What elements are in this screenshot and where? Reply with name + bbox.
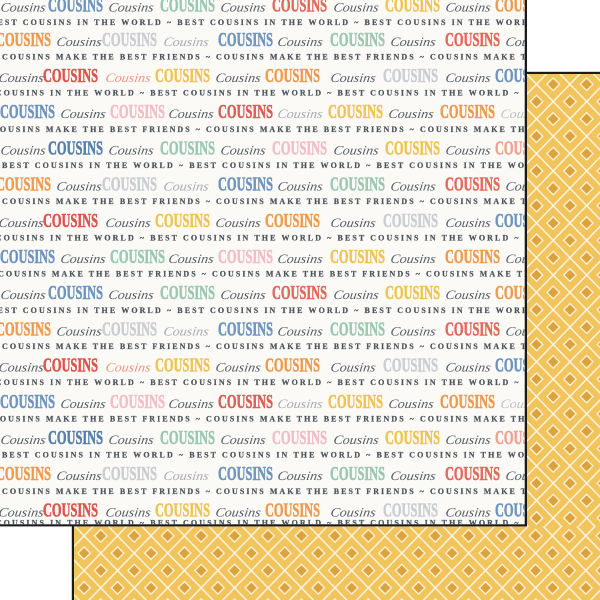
- svg-text:COUSINS: COUSINS: [385, 0, 440, 17]
- svg-text:Cousins: Cousins: [0, 505, 45, 519]
- svg-text:Cousins: Cousins: [60, 252, 107, 266]
- svg-text:COUSINS: COUSINS: [102, 464, 157, 485]
- svg-text:COUSINS: COUSINS: [445, 175, 500, 196]
- svg-text:COUSINS MAKE THE BEST FRIENDS: COUSINS MAKE THE BEST FRIENDS ~ COUSINS …: [2, 342, 600, 351]
- svg-text:Cousins: Cousins: [445, 143, 492, 157]
- svg-text:Cousins: Cousins: [105, 505, 152, 519]
- svg-text:COUSINS: COUSINS: [330, 319, 385, 340]
- svg-text:COUSINS: COUSINS: [385, 428, 440, 449]
- svg-text:Cousins: Cousins: [445, 1, 492, 15]
- svg-text:COUSINS: COUSINS: [218, 392, 273, 413]
- svg-text:COUSINS: COUSINS: [218, 319, 273, 340]
- svg-text:COUSINS: COUSINS: [272, 428, 327, 449]
- svg-text:COUSINS: COUSINS: [383, 356, 438, 377]
- svg-text:COUSINS: COUSINS: [110, 392, 165, 413]
- svg-text:COUSINS: COUSINS: [0, 247, 55, 268]
- svg-text:Cousins: Cousins: [163, 35, 210, 49]
- svg-text:COUSINS: COUSINS: [43, 356, 98, 377]
- svg-text:COUSINS: COUSINS: [495, 0, 550, 17]
- svg-text:BEST COUSINS IN THE WORLD ~ BE: BEST COUSINS IN THE WORLD ~ BEST COUSINS…: [0, 89, 600, 98]
- svg-text:COUSINS MAKE THE BEST FRIENDS: COUSINS MAKE THE BEST FRIENDS ~ COUSINS …: [2, 487, 600, 496]
- svg-text:BEST COUSINS IN THE WORLD ~ BE: BEST COUSINS IN THE WORLD ~ BEST COUSINS…: [0, 378, 600, 387]
- svg-text:COUSINS MAKE THE BEST FRIENDS: COUSINS MAKE THE BEST FRIENDS ~ COUSINS …: [0, 270, 600, 279]
- svg-text:Cousins: Cousins: [0, 1, 47, 15]
- svg-text:Cousins: Cousins: [56, 180, 103, 194]
- svg-text:COUSINS MAKE THE BEST FRIENDS: COUSINS MAKE THE BEST FRIENDS ~ COUSINS …: [0, 414, 600, 423]
- svg-text:COUSINS: COUSINS: [48, 0, 103, 17]
- svg-text:COUSINS: COUSINS: [330, 30, 385, 51]
- svg-text:Cousins: Cousins: [168, 252, 215, 266]
- svg-text:COUSINS: COUSINS: [110, 247, 165, 268]
- svg-text:COUSINS: COUSINS: [383, 211, 438, 232]
- svg-text:COUSINS: COUSINS: [160, 428, 215, 449]
- svg-text:COUSINS: COUSINS: [102, 319, 157, 340]
- svg-text:Cousins: Cousins: [445, 505, 492, 519]
- svg-text:COUSINS: COUSINS: [43, 211, 98, 232]
- svg-text:Cousins: Cousins: [277, 107, 324, 121]
- svg-text:Cousins: Cousins: [390, 35, 437, 49]
- svg-text:Cousins: Cousins: [105, 361, 152, 375]
- svg-text:COUSINS: COUSINS: [102, 30, 157, 51]
- svg-text:COUSINS: COUSINS: [272, 138, 327, 159]
- svg-text:Cousins: Cousins: [330, 216, 377, 230]
- svg-text:Cousins: Cousins: [445, 288, 492, 302]
- svg-text:COUSINS: COUSINS: [383, 66, 438, 87]
- svg-text:Cousins: Cousins: [277, 324, 324, 338]
- svg-text:COUSINS: COUSINS: [265, 66, 320, 87]
- svg-text:COUSINS: COUSINS: [155, 66, 210, 87]
- svg-text:COUSINS: COUSINS: [440, 102, 495, 123]
- svg-text:Cousins: Cousins: [277, 469, 324, 483]
- svg-text:Cousins: Cousins: [105, 71, 152, 85]
- svg-text:Cousins: Cousins: [0, 361, 45, 375]
- svg-text:COUSINS: COUSINS: [328, 102, 383, 123]
- svg-text:BEST COUSINS IN THE WORLD ~ BE: BEST COUSINS IN THE WORLD ~ BEST COUSINS…: [2, 161, 600, 170]
- svg-text:Cousins: Cousins: [333, 143, 380, 157]
- svg-text:Cousins: Cousins: [445, 433, 492, 447]
- svg-text:COUSINS: COUSINS: [0, 392, 55, 413]
- svg-text:Cousins: Cousins: [56, 324, 103, 338]
- svg-text:Cousins: Cousins: [390, 180, 437, 194]
- svg-text:COUSINS: COUSINS: [445, 30, 500, 51]
- svg-text:Cousins: Cousins: [333, 433, 380, 447]
- svg-text:Cousins: Cousins: [56, 35, 103, 49]
- svg-text:Cousins: Cousins: [220, 143, 267, 157]
- svg-text:BEST COUSINS IN THE WORLD ~ BE: BEST COUSINS IN THE WORLD ~ BEST COUSINS…: [2, 451, 600, 460]
- svg-text:COUSINS: COUSINS: [48, 428, 103, 449]
- svg-text:Cousins: Cousins: [330, 361, 377, 375]
- svg-text:COUSINS: COUSINS: [0, 175, 51, 196]
- svg-text:COUSINS: COUSINS: [160, 0, 215, 17]
- svg-text:COUSINS: COUSINS: [385, 283, 440, 304]
- svg-text:COUSINS: COUSINS: [385, 138, 440, 159]
- svg-text:COUSINS: COUSINS: [445, 319, 500, 340]
- svg-text:COUSINS: COUSINS: [160, 138, 215, 159]
- svg-text:COUSINS MAKE THE BEST FRIENDS: COUSINS MAKE THE BEST FRIENDS ~ COUSINS …: [2, 52, 600, 61]
- svg-text:COUSINS: COUSINS: [272, 0, 327, 17]
- svg-text:BEST COUSINS IN THE WORLD ~ BE: BEST COUSINS IN THE WORLD ~ BEST COUSINS…: [0, 18, 600, 27]
- svg-text:Cousins: Cousins: [0, 71, 45, 85]
- svg-text:Cousins: Cousins: [277, 35, 324, 49]
- svg-text:Cousins: Cousins: [390, 252, 437, 266]
- svg-text:COUSINS: COUSINS: [218, 30, 273, 51]
- svg-text:COUSINS MAKE THE BEST FRIENDS: COUSINS MAKE THE BEST FRIENDS ~ COUSINS …: [0, 125, 600, 134]
- svg-text:Cousins: Cousins: [330, 505, 377, 519]
- svg-text:COUSINS: COUSINS: [440, 392, 495, 413]
- svg-text:COUSINS: COUSINS: [0, 464, 51, 485]
- svg-text:Cousins: Cousins: [215, 71, 262, 85]
- svg-text:Cousins: Cousins: [108, 288, 155, 302]
- svg-text:Cousins: Cousins: [163, 469, 210, 483]
- svg-text:Cousins: Cousins: [445, 361, 492, 375]
- svg-text:Cousins: Cousins: [168, 397, 215, 411]
- svg-text:COUSINS: COUSINS: [218, 247, 273, 268]
- svg-text:COUSINS: COUSINS: [272, 283, 327, 304]
- svg-text:Cousins: Cousins: [445, 71, 492, 85]
- svg-text:Cousins: Cousins: [277, 397, 324, 411]
- svg-text:Cousins: Cousins: [0, 433, 47, 447]
- svg-text:COUSINS: COUSINS: [330, 175, 385, 196]
- svg-text:Cousins: Cousins: [163, 324, 210, 338]
- svg-text:Cousins: Cousins: [105, 216, 152, 230]
- svg-text:Cousins: Cousins: [163, 180, 210, 194]
- svg-text:COUSINS: COUSINS: [265, 211, 320, 232]
- svg-text:Cousins: Cousins: [388, 397, 435, 411]
- svg-text:Cousins: Cousins: [390, 324, 437, 338]
- svg-text:Cousins: Cousins: [215, 216, 262, 230]
- svg-text:Cousins: Cousins: [388, 107, 435, 121]
- svg-text:Cousins: Cousins: [168, 107, 215, 121]
- svg-text:COUSINS: COUSINS: [48, 283, 103, 304]
- svg-text:Cousins: Cousins: [0, 143, 47, 157]
- svg-text:Cousins: Cousins: [277, 252, 324, 266]
- svg-text:COUSINS: COUSINS: [445, 464, 500, 485]
- svg-text:Cousins: Cousins: [60, 397, 107, 411]
- svg-text:COUSINS: COUSINS: [160, 283, 215, 304]
- svg-text:COUSINS: COUSINS: [0, 319, 51, 340]
- svg-text:COUSINS: COUSINS: [265, 356, 320, 377]
- svg-text:COUSINS: COUSINS: [218, 464, 273, 485]
- svg-text:COUSINS: COUSINS: [218, 175, 273, 196]
- svg-text:Cousins: Cousins: [220, 433, 267, 447]
- svg-text:Cousins: Cousins: [108, 433, 155, 447]
- svg-text:Cousins: Cousins: [505, 35, 552, 49]
- svg-text:COUSINS: COUSINS: [48, 138, 103, 159]
- svg-text:Cousins: Cousins: [330, 71, 377, 85]
- svg-text:Cousins: Cousins: [220, 1, 267, 15]
- svg-text:COUSINS: COUSINS: [43, 66, 98, 87]
- svg-text:Cousins: Cousins: [445, 216, 492, 230]
- svg-text:BEST COUSINS IN THE WORLD ~ BE: BEST COUSINS IN THE WORLD ~ BEST COUSINS…: [0, 233, 600, 242]
- svg-text:Cousins: Cousins: [333, 288, 380, 302]
- svg-text:BEST COUSINS IN THE WORLD ~ BE: BEST COUSINS IN THE WORLD ~ BEST COUSINS…: [0, 306, 600, 315]
- svg-text:COUSINS: COUSINS: [218, 102, 273, 123]
- svg-text:Cousins: Cousins: [215, 361, 262, 375]
- svg-text:COUSINS: COUSINS: [330, 464, 385, 485]
- svg-text:Cousins: Cousins: [277, 180, 324, 194]
- svg-text:Cousins: Cousins: [56, 469, 103, 483]
- svg-text:Cousins: Cousins: [60, 107, 107, 121]
- svg-text:Cousins: Cousins: [0, 216, 45, 230]
- svg-text:Cousins: Cousins: [390, 469, 437, 483]
- svg-text:COUSINS: COUSINS: [155, 356, 210, 377]
- svg-text:Cousins: Cousins: [333, 1, 380, 15]
- svg-text:COUSINS: COUSINS: [155, 211, 210, 232]
- svg-text:Cousins: Cousins: [220, 288, 267, 302]
- svg-text:COUSINS: COUSINS: [102, 175, 157, 196]
- svg-text:Cousins: Cousins: [215, 505, 262, 519]
- svg-text:COUSINS: COUSINS: [330, 247, 385, 268]
- svg-text:Cousins: Cousins: [0, 288, 47, 302]
- svg-text:COUSINS: COUSINS: [328, 392, 383, 413]
- svg-text:COUSINS: COUSINS: [110, 102, 165, 123]
- svg-text:Cousins: Cousins: [108, 1, 155, 15]
- svg-text:Cousins: Cousins: [108, 143, 155, 157]
- svg-text:COUSINS: COUSINS: [0, 102, 55, 123]
- svg-text:COUSINS: COUSINS: [445, 247, 500, 268]
- svg-text:COUSINS MAKE THE BEST FRIENDS: COUSINS MAKE THE BEST FRIENDS ~ COUSINS …: [2, 197, 600, 206]
- svg-text:COUSINS: COUSINS: [0, 30, 51, 51]
